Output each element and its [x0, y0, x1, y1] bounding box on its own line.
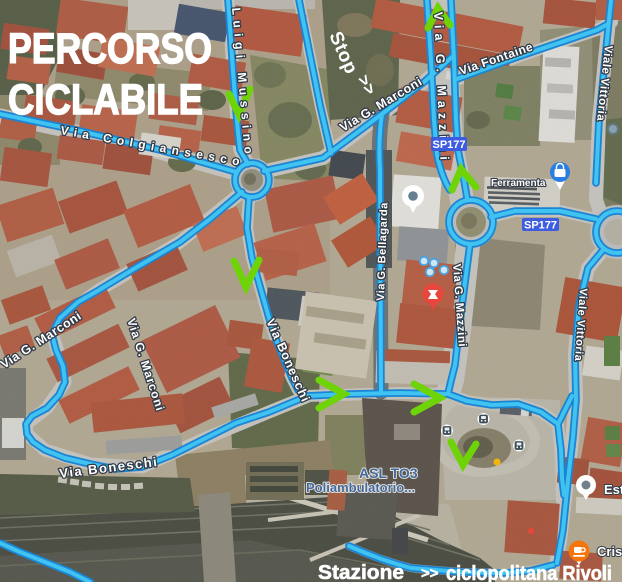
- svg-text:PERCORSO: PERCORSO: [8, 25, 212, 73]
- svg-text:CICLABILE: CICLABILE: [8, 76, 203, 124]
- svg-text:ciclopolitana Rivoli: ciclopolitana Rivoli: [446, 563, 612, 582]
- svg-text:Stazione: Stazione: [318, 562, 404, 582]
- svg-text:Crist: Crist: [597, 544, 622, 559]
- svg-text:Est: Est: [604, 482, 622, 497]
- svg-text:SP177: SP177: [432, 139, 465, 151]
- svg-text:SP177: SP177: [524, 220, 557, 232]
- svg-text:ASL TO3: ASL TO3: [359, 465, 418, 481]
- svg-text:Ferramenta: Ferramenta: [491, 178, 546, 189]
- svg-text:Poliambulatorio...: Poliambulatorio...: [306, 480, 415, 495]
- svg-text:>>: >>: [421, 565, 439, 582]
